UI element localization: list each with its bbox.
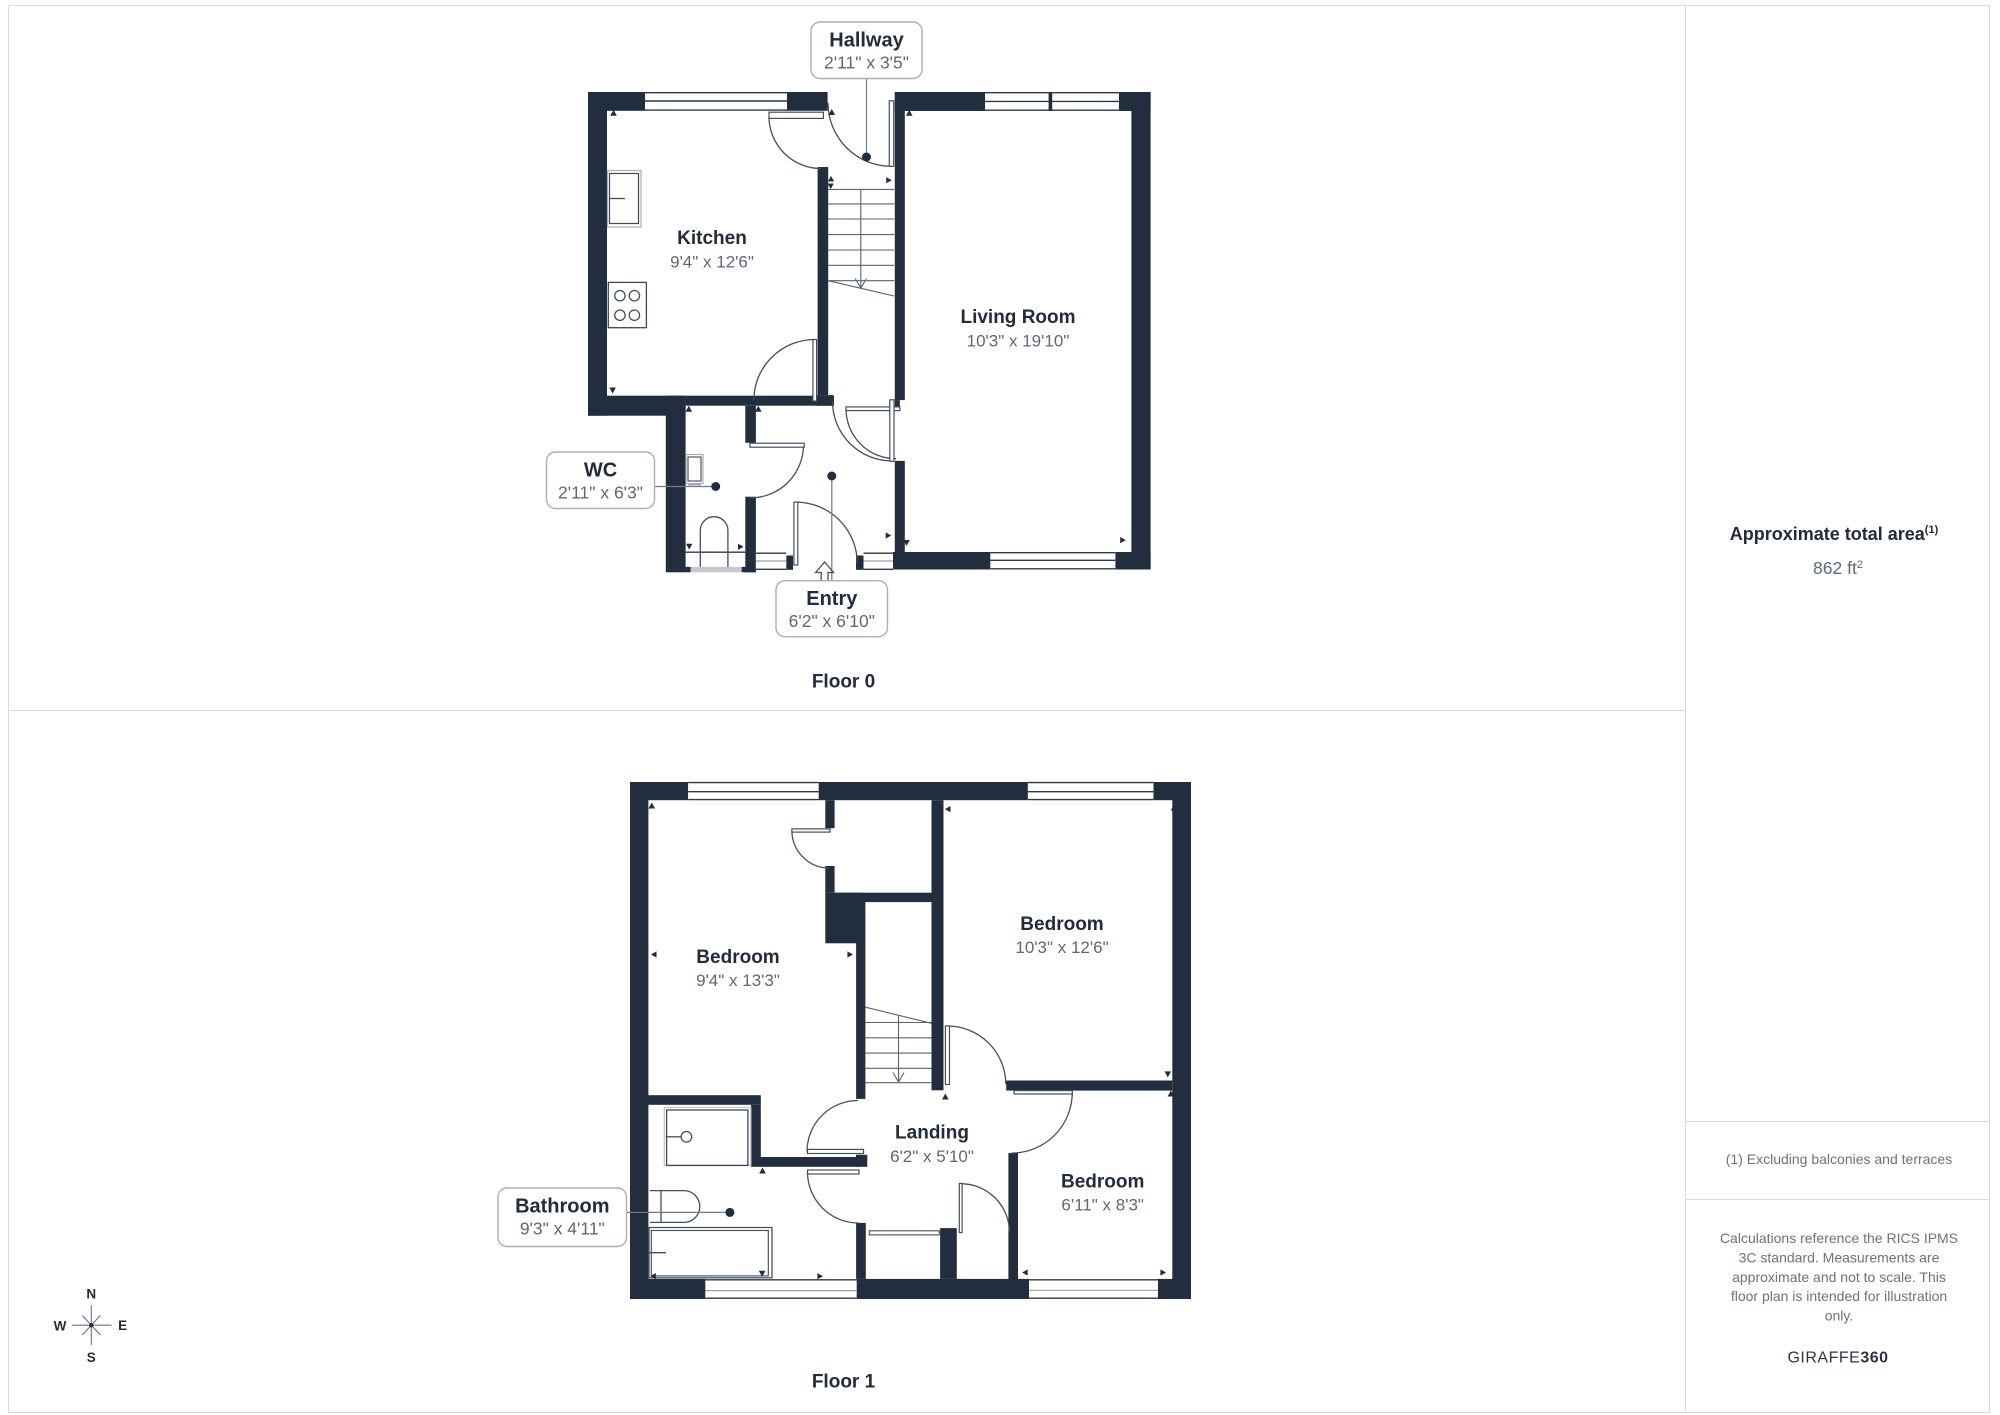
svg-text:S: S [87,1350,96,1365]
svg-text:Bedroom: Bedroom [1061,1172,1144,1193]
svg-text:6'11" x 8'3": 6'11" x 8'3" [1061,1196,1144,1215]
svg-text:2'11" x 3'5": 2'11" x 3'5" [824,52,909,72]
svg-text:9'3" x 4'11": 9'3" x 4'11" [520,1218,605,1238]
svg-text:2'11" x 6'3": 2'11" x 6'3" [558,482,643,502]
svg-text:Floor 0: Floor 0 [812,672,875,693]
svg-text:Hallway: Hallway [829,30,904,52]
svg-text:10'3" x 19'10": 10'3" x 19'10" [967,331,1070,350]
svg-text:(1) Excluding balconies and te: (1) Excluding balconies and terraces [1726,1151,1952,1167]
svg-text:3C standard. Measurements are: 3C standard. Measurements are [1739,1249,1940,1265]
svg-text:Bathroom: Bathroom [515,1196,609,1218]
svg-text:Calculations reference the RIC: Calculations reference the RICS IPMS [1720,1230,1958,1246]
svg-text:only.: only. [1825,1308,1854,1324]
svg-text:6'2" x 6'10": 6'2" x 6'10" [789,611,875,631]
svg-text:Bedroom: Bedroom [1020,914,1103,935]
svg-text:GIRAFFE360: GIRAFFE360 [1787,1350,1888,1367]
svg-text:Entry: Entry [806,588,858,610]
svg-text:floor plan is intended for ill: floor plan is intended for illustration [1731,1288,1947,1304]
svg-text:Bedroom: Bedroom [696,947,779,968]
svg-text:6'2" x 5'10": 6'2" x 5'10" [890,1147,974,1166]
svg-text:Kitchen: Kitchen [677,228,747,249]
svg-text:Approximate total area(1): Approximate total area(1) [1730,524,1939,544]
svg-text:approximate and not to scale.: approximate and not to scale. This [1732,1269,1946,1285]
svg-text:9'4" x 13'3": 9'4" x 13'3" [696,971,780,990]
svg-text:N: N [86,1287,96,1302]
svg-text:Living Room: Living Room [960,307,1075,328]
svg-text:862 ft2: 862 ft2 [1813,558,1863,578]
svg-text:Floor 1: Floor 1 [812,1372,876,1393]
svg-text:9'4" x 12'6": 9'4" x 12'6" [670,252,754,271]
svg-text:W: W [54,1319,67,1334]
svg-text:E: E [118,1318,127,1333]
svg-text:10'3" x 12'6": 10'3" x 12'6" [1015,938,1108,957]
svg-text:WC: WC [584,460,617,482]
svg-text:Landing: Landing [895,1123,969,1144]
